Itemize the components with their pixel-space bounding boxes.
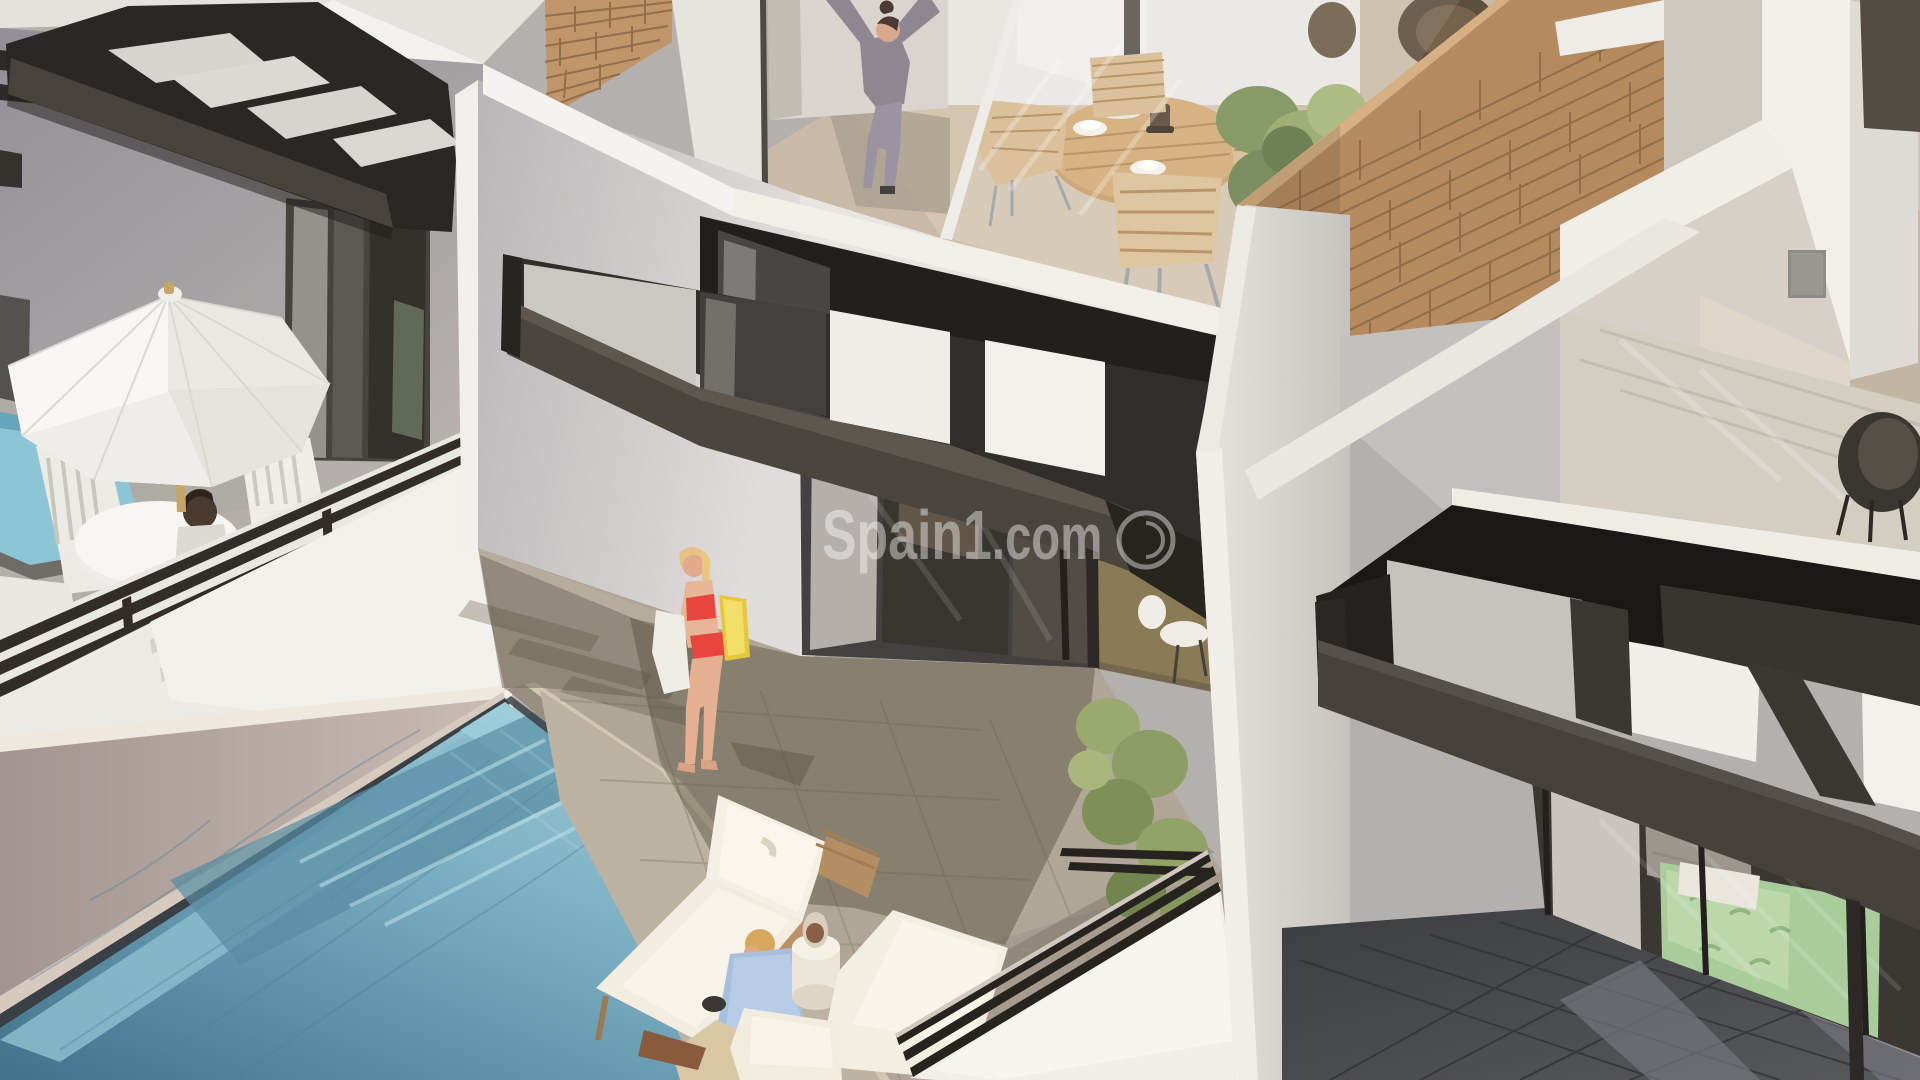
svg-text:Spain1.com: Spain1.com [822, 496, 1102, 574]
